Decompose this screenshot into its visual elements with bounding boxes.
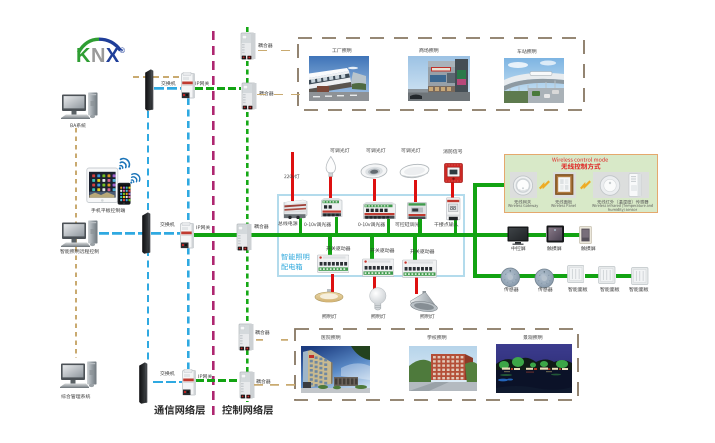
svg-text:88: 88 bbox=[450, 206, 456, 212]
